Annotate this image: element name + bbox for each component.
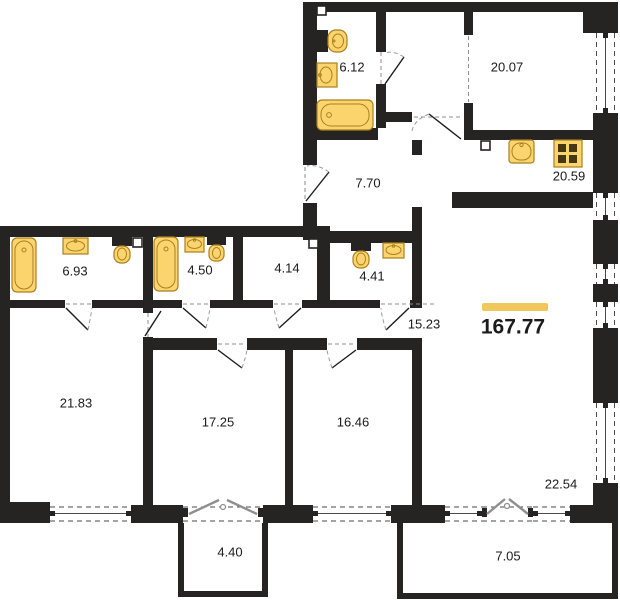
toilet-icon — [351, 243, 371, 268]
room-area-label-bedroom-top: 20.07 — [491, 59, 524, 74]
room-area-label-bathroom-left: 6.93 — [62, 263, 87, 278]
door[interactable] — [183, 304, 210, 328]
door[interactable] — [327, 344, 356, 368]
vent-icon — [317, 6, 326, 15]
room-area-label-hallway: 7.70 — [355, 175, 380, 190]
balcony-door[interactable] — [183, 500, 263, 521]
toilet-icon — [207, 237, 226, 261]
window — [597, 33, 615, 113]
room-area-label-kitchen: 20.59 — [553, 168, 586, 183]
door[interactable] — [274, 304, 301, 328]
bathtub-icon — [154, 237, 178, 291]
room-area-label-bathroom-top: 6.12 — [339, 59, 364, 74]
sink-icon — [185, 237, 204, 252]
sink-icon — [383, 243, 404, 258]
total-area-accent-bar — [482, 303, 548, 311]
total-area: 167.77 — [481, 303, 548, 339]
bathtub-icon — [12, 238, 36, 292]
walls — [0, 2, 618, 599]
door[interactable] — [381, 52, 404, 84]
stove-icon — [554, 140, 582, 167]
window — [533, 507, 570, 521]
room-area-label-balcony-left: 4.40 — [217, 544, 242, 559]
toilet-icon — [317, 30, 347, 52]
entrance-door[interactable] — [305, 166, 329, 201]
room-area-label-corridor: 15.23 — [408, 316, 441, 331]
room-area-label-wc: 4.41 — [359, 268, 384, 283]
window — [313, 507, 391, 521]
vent-icon — [309, 239, 318, 248]
window — [597, 193, 615, 220]
door[interactable] — [412, 114, 462, 139]
total-area-label: 167.77 — [481, 316, 545, 339]
room-area-label-bathroom-mid: 4.50 — [187, 262, 212, 277]
window — [597, 302, 615, 328]
door[interactable] — [145, 311, 161, 337]
toilet-icon — [112, 237, 132, 263]
bathtub-icon — [317, 100, 373, 130]
room-area-label-living-room: 22.54 — [545, 476, 578, 491]
balcony-door[interactable] — [482, 499, 533, 521]
window — [445, 507, 482, 521]
window — [597, 403, 615, 483]
room-area-label-balcony-right: 7.05 — [495, 548, 520, 563]
room-area-label-storage: 4.14 — [274, 260, 299, 275]
vent-icon — [133, 238, 142, 247]
kitchen-sink-icon — [509, 140, 534, 163]
sink-icon — [63, 238, 88, 254]
vent-icon — [481, 141, 490, 150]
door[interactable] — [66, 304, 92, 330]
room-area-label-bedroom-right: 16.46 — [337, 414, 370, 429]
floor-plan: 6.12 20.07 7.70 20.59 6.93 4.50 4.14 4.4… — [0, 0, 620, 600]
window — [597, 264, 615, 284]
room-area-label-bedroom-mid: 17.25 — [202, 414, 235, 429]
window — [50, 507, 131, 521]
door[interactable] — [218, 344, 247, 368]
floor-plan-page: 6.12 20.07 7.70 20.59 6.93 4.50 4.14 4.4… — [0, 0, 620, 600]
sink-icon — [317, 63, 337, 87]
room-area-label-bedroom-left: 21.83 — [60, 395, 93, 410]
